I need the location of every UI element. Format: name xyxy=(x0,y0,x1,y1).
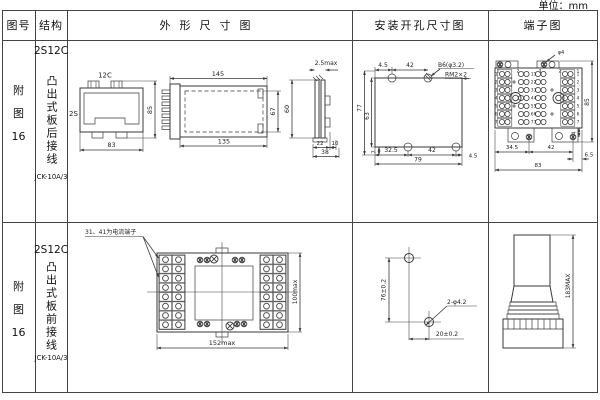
dim-label: 42 xyxy=(406,62,414,69)
catalog-page: 单位：mm 图号 结构 外形尺寸图 安装开孔尺寸图 端子图 附 图 16 2S1… xyxy=(0,0,600,400)
dim-label: 67 xyxy=(269,107,277,115)
dim-label: 76±0.2 xyxy=(381,279,388,301)
dim-label: 85 xyxy=(584,98,591,106)
dim-label: 183MAX xyxy=(565,274,572,299)
dim-label: 22 xyxy=(317,141,324,147)
dim-label: 145 xyxy=(212,70,224,78)
figure-char: 附 xyxy=(13,84,24,97)
dim-label: 77 xyxy=(357,104,364,112)
terminal-plate-front xyxy=(147,242,298,344)
mounting-drawing-front-wiring: 76±0.2 2-φ4.2 20±0.2 xyxy=(352,222,488,393)
row-num: 6 xyxy=(495,112,498,117)
mid-num: 66 xyxy=(531,112,537,117)
model-label-row1: 2S12C xyxy=(35,44,67,58)
structure-desc-row1: 凸出式板后接线 xyxy=(35,68,67,172)
mid-num: 77 xyxy=(531,120,537,125)
header-structure: 结构 xyxy=(35,10,67,40)
row-num: 6 xyxy=(577,112,580,117)
structure-desc-text: 凸出式板后接线 xyxy=(44,75,58,166)
product-label-row1: JCK-10A/3 xyxy=(33,172,69,182)
row-num: 3 xyxy=(495,88,498,93)
row-num: 3 xyxy=(577,88,580,93)
side-view-drawing: 145 135 67 xyxy=(162,70,281,148)
row-num: 1 xyxy=(577,72,580,77)
dim-label: 4 xyxy=(572,131,578,134)
figure-number-row2: 附 图 16 xyxy=(2,268,35,350)
hole-callout: 2-φ4.2 xyxy=(447,299,467,306)
model-label-row2: 2S12C xyxy=(35,243,67,257)
terminal-grid: 1 2 3 2 1 1 2 3 4 5 6 7 11 22 33 44 55 6… xyxy=(495,69,580,127)
outline-drawing-front-wiring: 31、41为电流端子 152max 100max xyxy=(67,222,352,393)
dim-label: 6.5 xyxy=(585,153,594,159)
product-label-row2: JCK-10A/3 xyxy=(33,353,69,363)
row-num: 2 xyxy=(577,80,580,85)
dim-label: 135 xyxy=(218,138,230,146)
row-num: 4 xyxy=(495,96,498,101)
thread-callout: RM2×2 xyxy=(445,72,467,79)
dim-label: 2.5max xyxy=(315,60,338,67)
col-num: 2 xyxy=(517,69,520,74)
dim-label: 42 xyxy=(548,145,555,151)
row-num: 5 xyxy=(495,104,498,109)
col-num: 2 xyxy=(559,69,562,74)
row-num: 1 xyxy=(495,72,498,77)
current-terminal-note: 31、41为电流端子 xyxy=(85,228,136,236)
dim-label: 4.5 xyxy=(469,154,478,160)
dim-label: 42 xyxy=(428,147,436,154)
relay-profile xyxy=(503,235,563,348)
dim-label: 60 xyxy=(283,105,291,113)
row-num: 7 xyxy=(495,120,498,125)
dim-label: 2S xyxy=(69,110,78,118)
dim-label: 63 xyxy=(364,112,371,120)
col-num: 3 xyxy=(539,69,542,74)
header-terminal: 端子图 xyxy=(488,10,598,40)
mounting-drawing-rear-wiring: 4.5 42 B6(φ3.2) RM2×2 77 63 7 32.5 42 4.… xyxy=(352,40,488,222)
dim-label: 4.5 xyxy=(378,62,388,69)
structure-desc-row2: 凸出式板前接线 xyxy=(35,258,67,354)
mid-num: 44 xyxy=(531,96,537,101)
figure-number-row1: 附 图 16 xyxy=(2,74,35,152)
dim-label: 83 xyxy=(535,163,542,169)
row-num: 4 xyxy=(577,96,580,101)
dim-label: 34.5 xyxy=(506,145,519,151)
mid-num: 33 xyxy=(531,88,537,93)
figure-char: 附 xyxy=(13,280,24,293)
terminal-diagram-rear-wiring: φ4 1 2 3 2 1 1 2 3 4 5 6 7 11 22 33 xyxy=(488,40,598,222)
dim-label: 20±0.2 xyxy=(436,331,458,338)
dim-label: 12C xyxy=(98,72,112,80)
dim-label: 100max xyxy=(292,279,299,304)
dim-label: 79 xyxy=(414,157,422,164)
dim-label: 38 xyxy=(321,149,329,156)
row-num: 5 xyxy=(577,104,580,109)
dim-label: 10 xyxy=(332,141,339,147)
figure-char: 图 xyxy=(13,303,24,316)
mid-num: 22 xyxy=(531,80,537,85)
row-num: 7 xyxy=(577,120,580,125)
mid-num: 55 xyxy=(531,104,537,109)
figure-char: 16 xyxy=(12,130,26,143)
row-num: 2 xyxy=(495,80,498,85)
structure-desc-text: 凸出式板前接线 xyxy=(45,261,58,352)
header-outline: 外形尺寸图 xyxy=(67,10,352,40)
dim-label: 7 xyxy=(372,150,378,154)
header-mounting: 安装开孔尺寸图 xyxy=(352,10,488,40)
front-view-drawing: 12C 2S 85 83 xyxy=(69,72,157,153)
figure-char: 16 xyxy=(12,326,26,339)
screw-callout: φ4 xyxy=(558,50,564,56)
dim-label: 83 xyxy=(107,141,115,149)
dim-label: 152max xyxy=(209,339,236,347)
figure-char: 图 xyxy=(13,107,24,120)
outline-drawing-rear-wiring: 12C 2S 85 83 145 135 xyxy=(67,40,352,222)
dim-label: 32.5 xyxy=(384,147,398,154)
mid-num: 11 xyxy=(531,72,537,77)
dim-label: 85 xyxy=(146,106,154,114)
hole-callout: B6(φ3.2) xyxy=(438,62,464,69)
terminal-profile-front-wiring: 183MAX xyxy=(488,222,598,393)
header-figure: 图号 xyxy=(2,10,35,40)
edge-view-drawing: 60 2.5max 22 10 38 xyxy=(283,60,339,158)
